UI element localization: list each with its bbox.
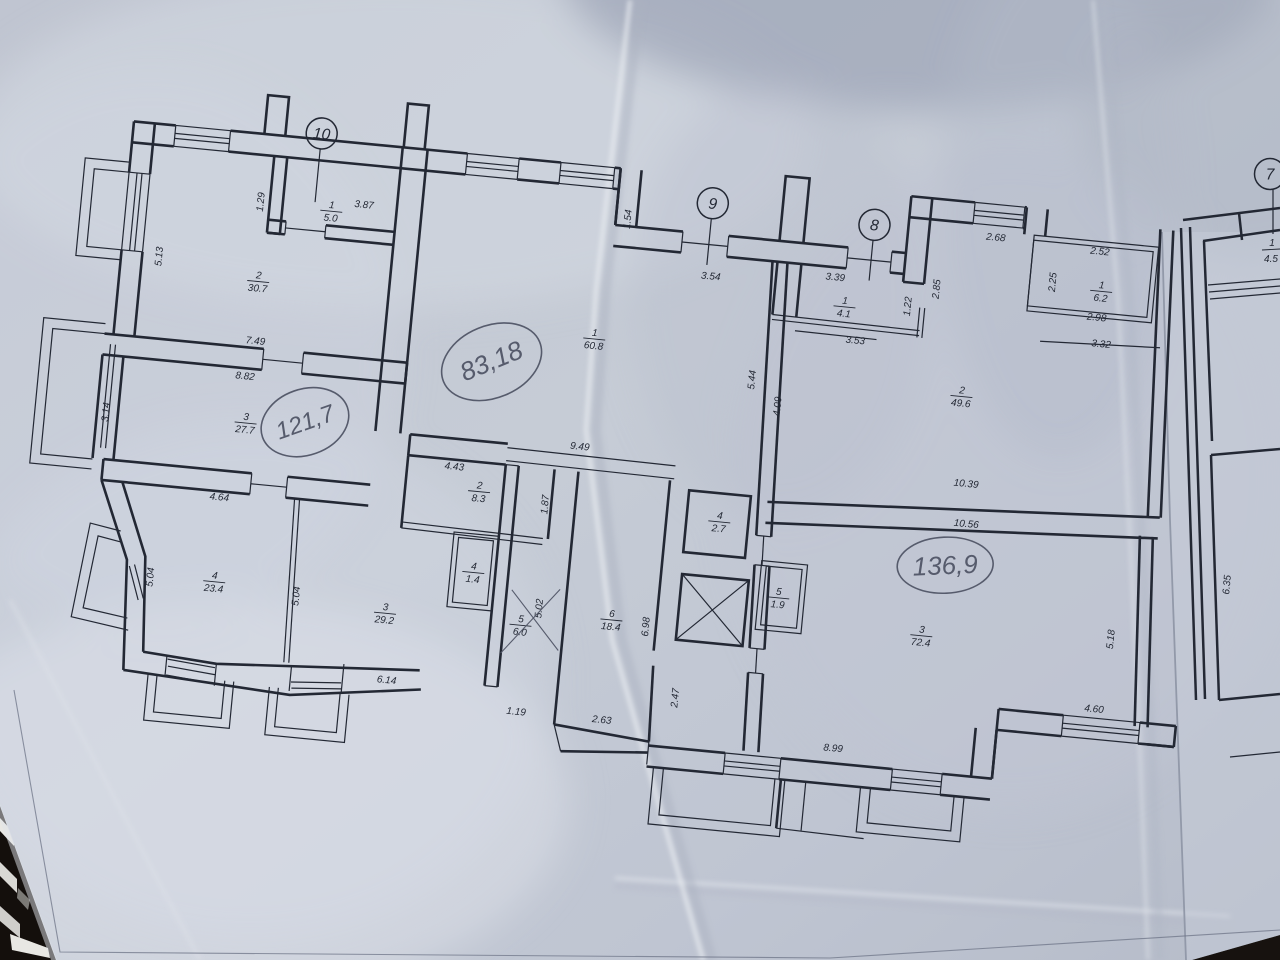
- svg-text:2.47: 2.47: [669, 687, 682, 709]
- svg-text:1.22: 1.22: [902, 296, 915, 317]
- svg-text:1: 1: [591, 328, 598, 339]
- svg-text:2.52: 2.52: [1089, 246, 1111, 259]
- svg-text:6.35: 6.35: [1221, 574, 1234, 595]
- svg-text:7: 7: [1266, 167, 1276, 184]
- svg-text:5.44: 5.44: [746, 369, 759, 390]
- svg-text:8.99: 8.99: [823, 742, 844, 755]
- svg-text:4.60: 4.60: [1084, 703, 1105, 716]
- svg-text:3.32: 3.32: [1091, 338, 1112, 351]
- svg-text:4.1: 4.1: [836, 308, 851, 320]
- svg-text:10: 10: [312, 125, 331, 144]
- svg-text:1.87: 1.87: [539, 494, 552, 515]
- svg-text:5.04: 5.04: [144, 566, 157, 587]
- svg-text:29.2: 29.2: [373, 614, 395, 627]
- svg-text:2.85: 2.85: [931, 279, 944, 301]
- svg-text:1: 1: [1269, 238, 1275, 249]
- svg-text:30.7: 30.7: [247, 283, 268, 296]
- svg-text:1.54: 1.54: [622, 209, 635, 230]
- svg-text:4.09: 4.09: [772, 396, 785, 417]
- svg-text:2.25: 2.25: [1047, 272, 1060, 294]
- svg-text:3.53: 3.53: [845, 335, 866, 348]
- svg-text:1.19: 1.19: [506, 706, 527, 719]
- svg-text:6.14: 6.14: [376, 674, 397, 687]
- svg-text:5.04: 5.04: [290, 586, 303, 607]
- svg-text:1: 1: [1098, 280, 1105, 291]
- svg-text:5.13: 5.13: [153, 246, 166, 267]
- svg-text:1.29: 1.29: [255, 191, 268, 212]
- svg-text:9.49: 9.49: [570, 441, 591, 454]
- svg-text:3.14: 3.14: [100, 401, 113, 422]
- svg-text:4.43: 4.43: [444, 461, 465, 474]
- svg-text:23.4: 23.4: [202, 583, 224, 596]
- svg-text:7.49: 7.49: [245, 335, 266, 348]
- svg-text:1: 1: [329, 200, 336, 211]
- svg-text:1: 1: [842, 296, 849, 307]
- svg-text:2.63: 2.63: [591, 714, 613, 727]
- svg-text:72.4: 72.4: [910, 637, 931, 650]
- svg-text:6.98: 6.98: [640, 616, 653, 637]
- svg-text:27.7: 27.7: [234, 424, 256, 437]
- svg-text:6.2: 6.2: [1093, 293, 1108, 305]
- svg-text:8.3: 8.3: [471, 493, 486, 505]
- svg-text:4.5: 4.5: [1264, 254, 1278, 265]
- svg-text:5.0: 5.0: [323, 213, 338, 225]
- svg-text:8.82: 8.82: [235, 370, 256, 383]
- svg-text:2.7: 2.7: [710, 523, 726, 535]
- svg-text:3.87: 3.87: [354, 199, 375, 212]
- svg-text:2.68: 2.68: [985, 232, 1007, 245]
- svg-text:18.4: 18.4: [600, 621, 621, 634]
- svg-text:136,9: 136,9: [912, 549, 978, 582]
- svg-text:3.39: 3.39: [825, 271, 846, 284]
- svg-text:60.8: 60.8: [583, 340, 604, 353]
- svg-text:1.4: 1.4: [465, 574, 480, 586]
- svg-text:49.6: 49.6: [950, 398, 971, 411]
- svg-text:3.54: 3.54: [701, 270, 722, 283]
- svg-text:4.64: 4.64: [209, 491, 230, 504]
- svg-text:2.98: 2.98: [1085, 312, 1107, 325]
- svg-text:1.9: 1.9: [770, 599, 785, 611]
- svg-text:5.18: 5.18: [1105, 629, 1118, 650]
